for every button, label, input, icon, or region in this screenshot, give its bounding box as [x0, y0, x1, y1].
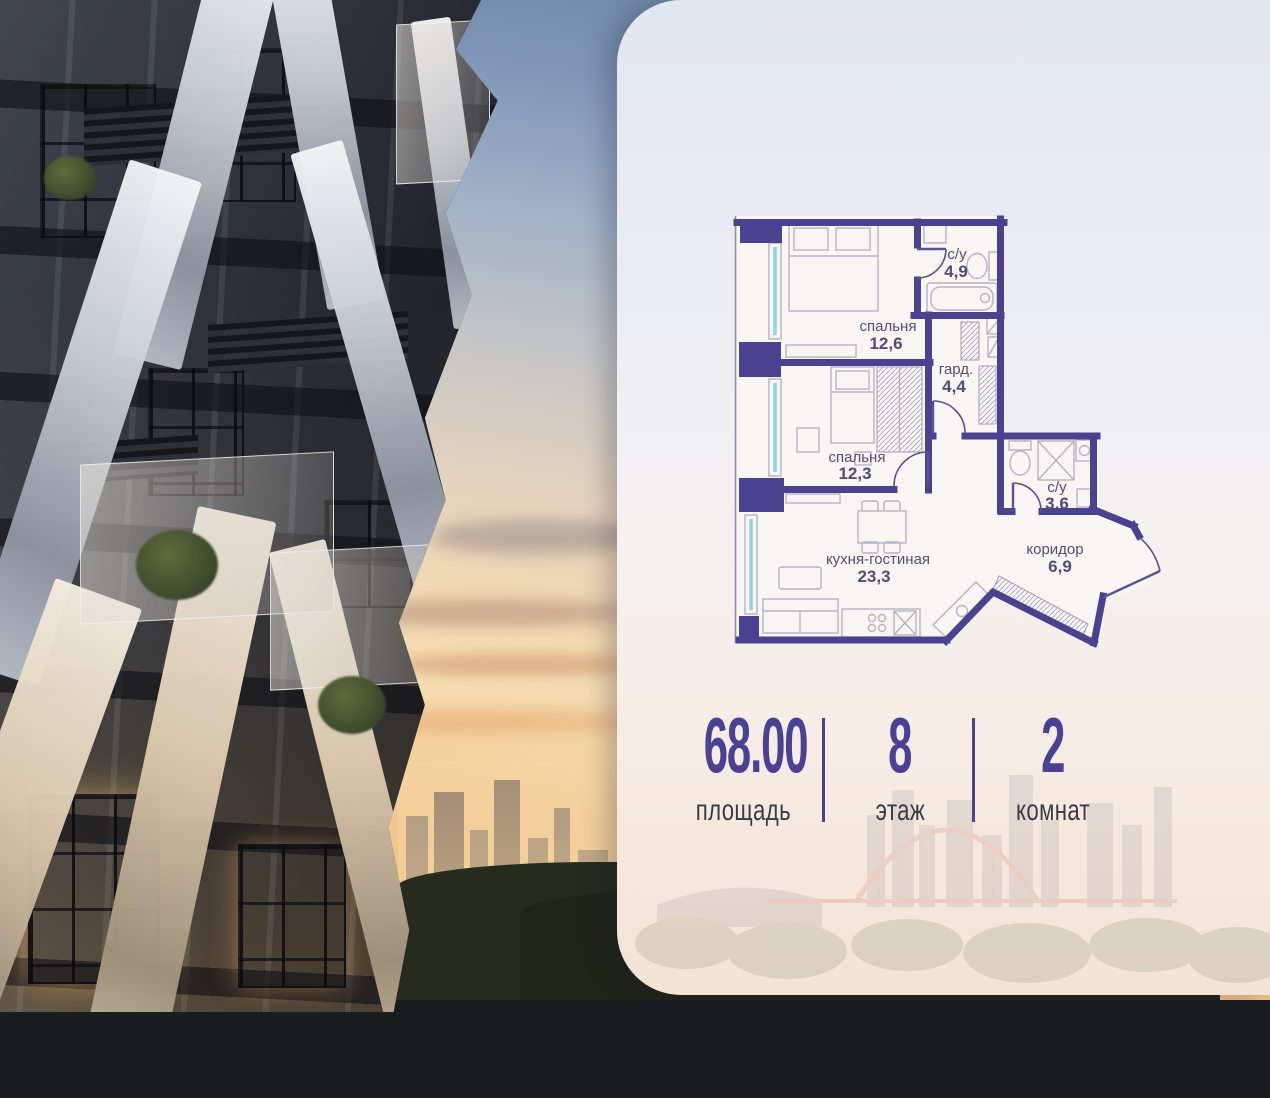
stat-floor: 8 этаж: [820, 706, 980, 828]
balcony-plant: [136, 530, 218, 600]
room-area: 12,6: [869, 334, 902, 353]
room-label: кухня-гостиная: [826, 551, 930, 568]
stat-rooms-label: комнат: [1016, 794, 1090, 828]
city-silhouette: [867, 775, 1172, 907]
stats-divider: [972, 718, 975, 822]
stat-area: 68.00 площадь: [663, 706, 823, 828]
cloud: [390, 655, 640, 675]
facade-window-lit: [238, 844, 346, 988]
room-label: с/у: [947, 246, 967, 263]
room-area: 12,3: [838, 464, 871, 483]
stat-area-value: 68.00: [704, 706, 808, 784]
room-area: 23,3: [857, 567, 890, 586]
stat-rooms: 2 комнат: [973, 706, 1133, 828]
stat-rooms-value: 2: [1041, 706, 1064, 784]
stats-divider: [822, 718, 825, 822]
floor-plan: спальня 12,6 с/у 4,9 гард. 4,4 спальня 1…: [725, 205, 1170, 660]
balcony-plant: [44, 156, 96, 200]
park-trees-silhouette: [635, 917, 1270, 983]
balcony-plant: [318, 676, 386, 734]
stat-floor-value: 8: [888, 706, 911, 784]
cloud: [430, 520, 640, 554]
stadium-silhouette: [657, 888, 822, 927]
listing-card[interactable]: спальня 12,6 с/у 4,9 гард. 4,4 спальня 1…: [617, 0, 1270, 995]
stat-area-label: площадь: [695, 794, 790, 828]
room-label: гард.: [939, 361, 973, 378]
room-area: 3,6: [1045, 494, 1069, 513]
card-background-cityscape: [617, 695, 1270, 995]
room-area: 6,9: [1048, 557, 1072, 576]
room-area: 4,9: [944, 262, 968, 281]
stat-floor-label: этаж: [875, 794, 924, 828]
room-label: спальня: [860, 318, 917, 335]
room-label: коридор: [1026, 541, 1083, 558]
balcony-glass: [396, 20, 490, 185]
bridge-silhouette: [767, 828, 1177, 901]
room-area: 4,4: [942, 377, 966, 396]
